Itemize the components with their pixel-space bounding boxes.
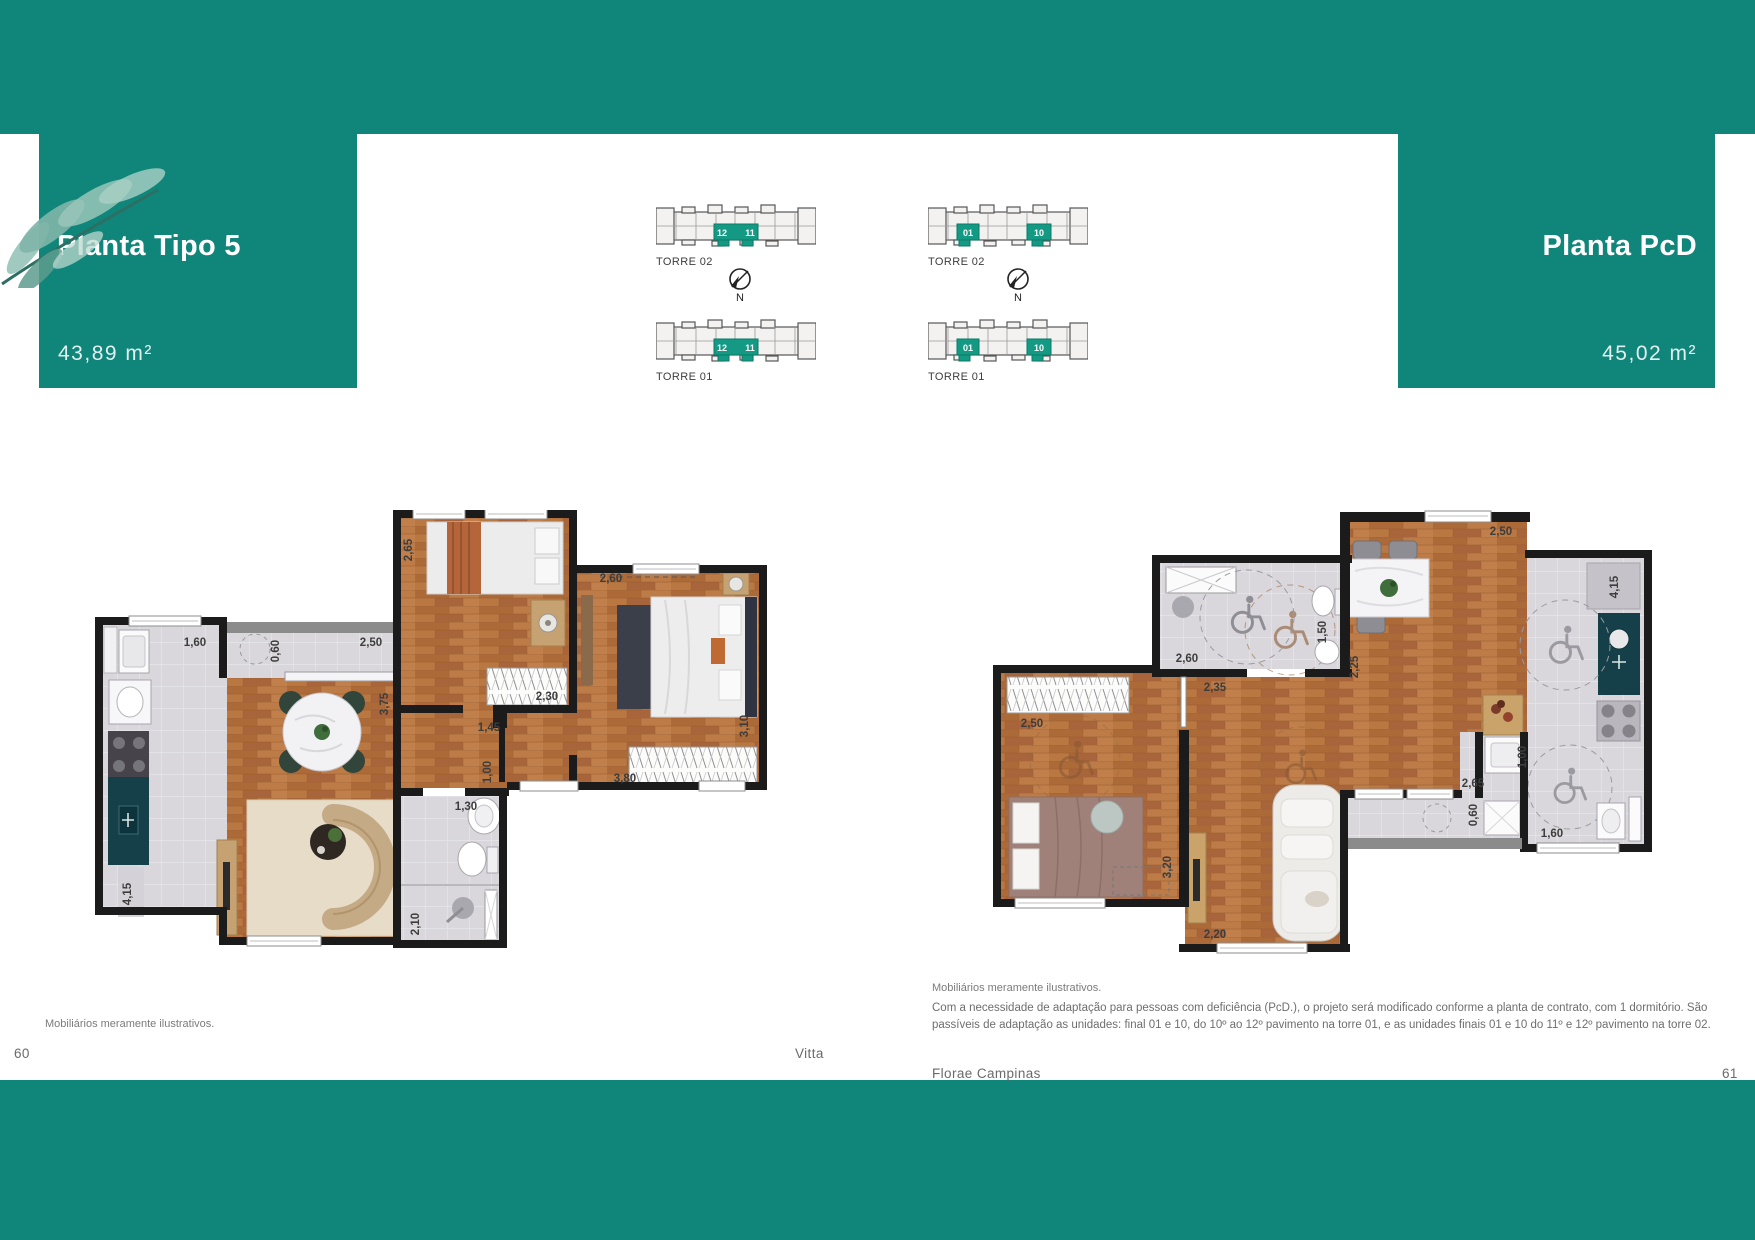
wardrobe-icon (1007, 677, 1129, 713)
floor-plan-tipo5: 1,60 0,60 2,50 2,65 2,60 3,75 2,30 1,45 … (95, 510, 770, 955)
tower-diagram-pcd-torre02: 01 10 TORRE 02 (928, 203, 1098, 268)
tower-footprint: 12 11 (656, 318, 816, 364)
counter-icon (1598, 613, 1640, 695)
leaf-decoration-icon (0, 108, 190, 288)
unit-number: 11 (745, 228, 755, 238)
compass-north-label: N (1014, 292, 1022, 304)
tower-footprint: 01 10 (928, 203, 1088, 249)
dim-label: 1,45 (478, 722, 501, 734)
project-footer: Florae Campinas (932, 1066, 1041, 1081)
dim-label: 2,35 (1204, 682, 1227, 694)
dim-label: 3,75 (379, 692, 391, 715)
dim-label: 4,15 (1609, 575, 1621, 598)
dim-label: 1,00 (482, 761, 494, 783)
tower-diagram-tipo5-torre01: 12 11 TORRE 01 (656, 318, 826, 383)
dim-label: 0,60 (1468, 804, 1480, 826)
tower-label: TORRE 01 (656, 371, 826, 383)
dim-label: 2,50 (1021, 718, 1043, 730)
dim-label: 1,50 (1317, 621, 1329, 643)
unit-number: 12 (717, 228, 727, 238)
dim-label: 3,80 (614, 773, 636, 785)
unit-number: 10 (1034, 343, 1044, 353)
dim-label: 2,65 (1462, 778, 1485, 790)
top-teal-bar (0, 0, 1755, 134)
right-plan-area: 45,02 m² (1602, 342, 1697, 366)
compass-icon: N (1000, 264, 1036, 304)
tower-footprint: 01 10 (928, 318, 1088, 364)
right-page-number: 61 (1722, 1066, 1738, 1081)
dim-label: 2,10 (410, 913, 422, 935)
toilet-icon (458, 842, 486, 876)
floor-plan-pcd: 2,50 4,15 2,60 1,50 2,25 2,35 2,50 3,20 … (985, 505, 1660, 960)
bottom-teal-bar (0, 1080, 1755, 1240)
balcony-rail (227, 622, 397, 633)
dim-label: 1,00 (1517, 746, 1529, 768)
left-plan-area: 43,89 m² (58, 342, 153, 366)
dim-label: 0,60 (270, 640, 282, 662)
brand-footer: Vitta (795, 1046, 824, 1061)
unit-number: 11 (745, 343, 755, 353)
unit-number: 01 (963, 343, 973, 353)
compass-icon: N (722, 264, 758, 304)
dim-label: 2,60 (1176, 653, 1198, 665)
dim-label: 2,50 (360, 637, 382, 649)
coffee-table-icon (310, 824, 346, 860)
sliding-door (285, 672, 397, 681)
left-footnote: Mobiliários meramente ilustrativos. (45, 1018, 214, 1030)
dim-label: 4,15 (122, 882, 134, 905)
tower-diagram-tipo5-torre02: 12 11 TORRE 02 (656, 203, 826, 268)
dim-label: 2,50 (1490, 526, 1512, 538)
right-footnote: Mobiliários meramente ilustrativos. (932, 982, 1101, 994)
unit-number: 01 (963, 228, 973, 238)
left-page-number: 60 (14, 1046, 30, 1061)
dim-label: 2,25 (1349, 655, 1361, 678)
dim-label: 3,20 (1162, 856, 1174, 878)
dim-label: 2,30 (536, 691, 558, 703)
balcony-rail (1348, 838, 1522, 849)
dim-label: 3,10 (739, 715, 751, 737)
toilet-icon (1312, 586, 1334, 616)
dim-label: 2,65 (403, 538, 415, 561)
brochure-page: Planta Tipo 5 43,89 m² Planta PcD 45,02 … (0, 0, 1755, 1240)
unit-number: 12 (717, 343, 727, 353)
tower-diagram-pcd-torre01: 01 10 TORRE 01 (928, 318, 1098, 383)
right-plan-title: Planta PcD (1543, 230, 1698, 263)
entry-door (520, 781, 578, 791)
unit-number: 10 (1034, 228, 1044, 238)
dim-label: 2,20 (1204, 929, 1226, 941)
dim-label: 2,60 (600, 573, 622, 585)
dining-set-icon (279, 691, 365, 773)
compass-north-label: N (736, 292, 744, 304)
tower-label: TORRE 01 (928, 371, 1098, 383)
tower-footprint: 12 11 (656, 203, 816, 249)
dim-label: 1,30 (455, 801, 477, 813)
right-plan-banner: Planta PcD 45,02 m² (1398, 134, 1715, 388)
dim-label: 1,60 (184, 637, 206, 649)
pcd-disclaimer: Com a necessidade de adaptação para pess… (932, 1000, 1727, 1035)
door-leaf (1181, 677, 1186, 727)
dim-label: 1,60 (1541, 828, 1563, 840)
